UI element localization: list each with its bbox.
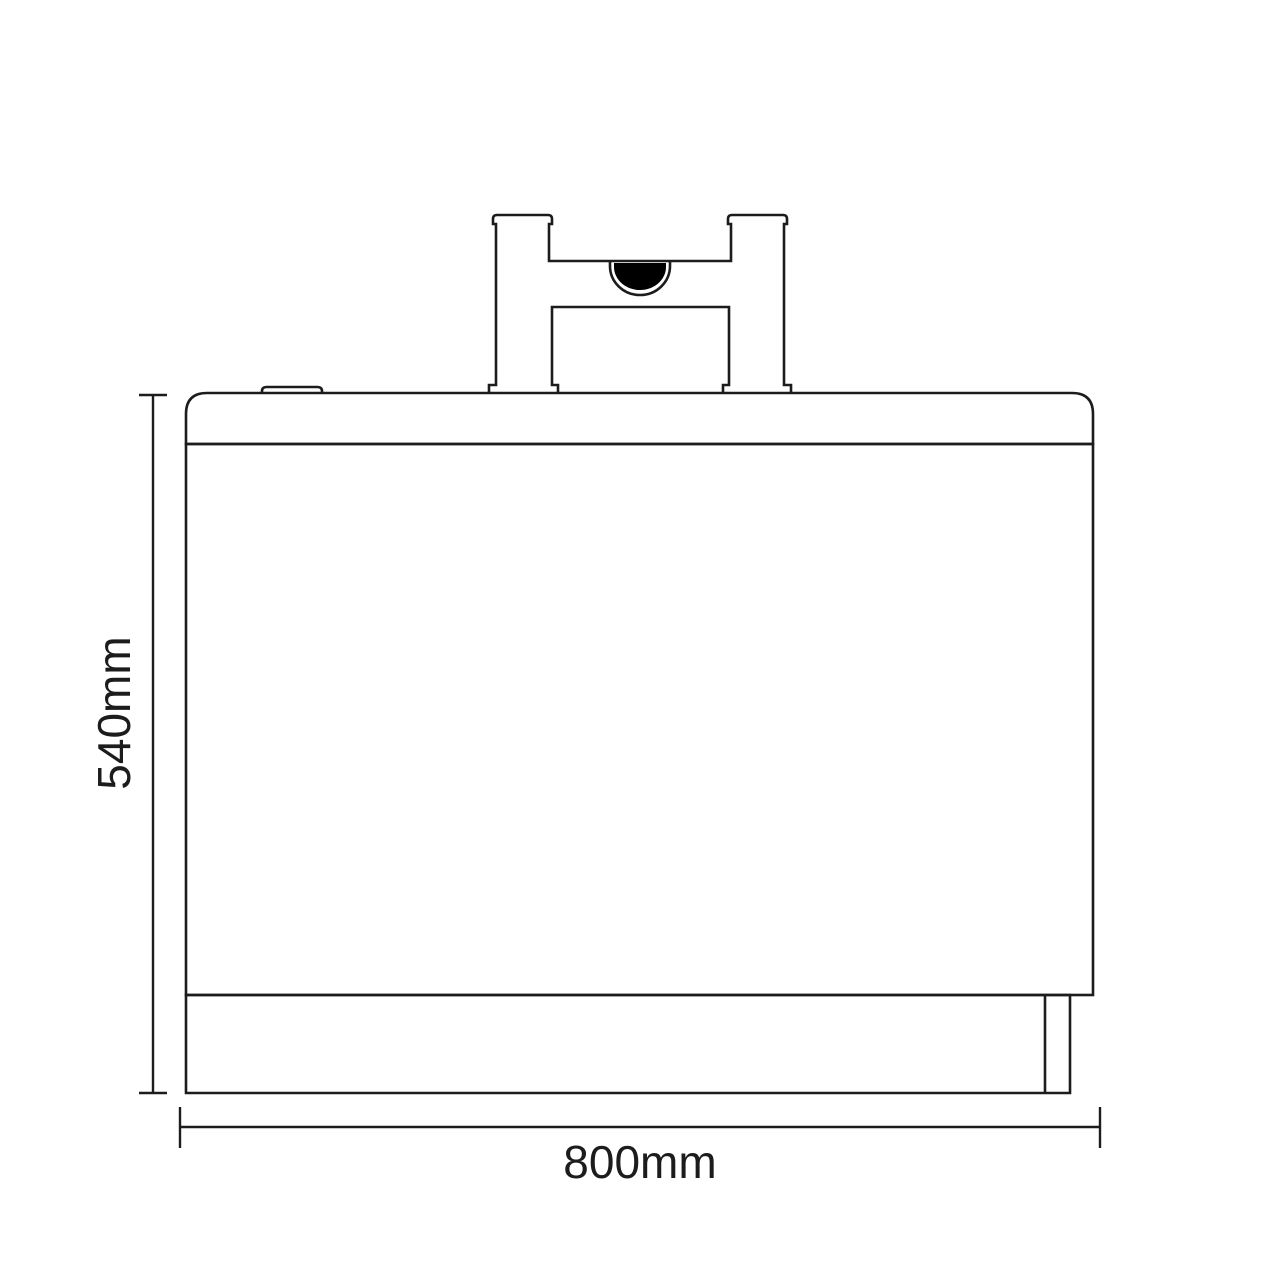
tap-spout-opening bbox=[614, 263, 666, 290]
bath-technical-drawing: 540mm 800mm bbox=[0, 0, 1280, 1280]
height-dimension-label: 540mm bbox=[88, 636, 140, 789]
plinth bbox=[186, 995, 1070, 1093]
height-dimension: 540mm bbox=[88, 395, 167, 1093]
tap-body-outline bbox=[489, 215, 791, 393]
tap-assembly bbox=[489, 215, 791, 393]
front-panel bbox=[186, 444, 1093, 995]
bath-body bbox=[186, 387, 1093, 1093]
bath-rim bbox=[186, 393, 1093, 444]
width-dimension-label: 800mm bbox=[563, 1136, 716, 1188]
width-dimension: 800mm bbox=[180, 1107, 1100, 1188]
tap-inner-opening bbox=[552, 307, 729, 393]
technical-drawing-page: 540mm 800mm bbox=[0, 0, 1280, 1280]
